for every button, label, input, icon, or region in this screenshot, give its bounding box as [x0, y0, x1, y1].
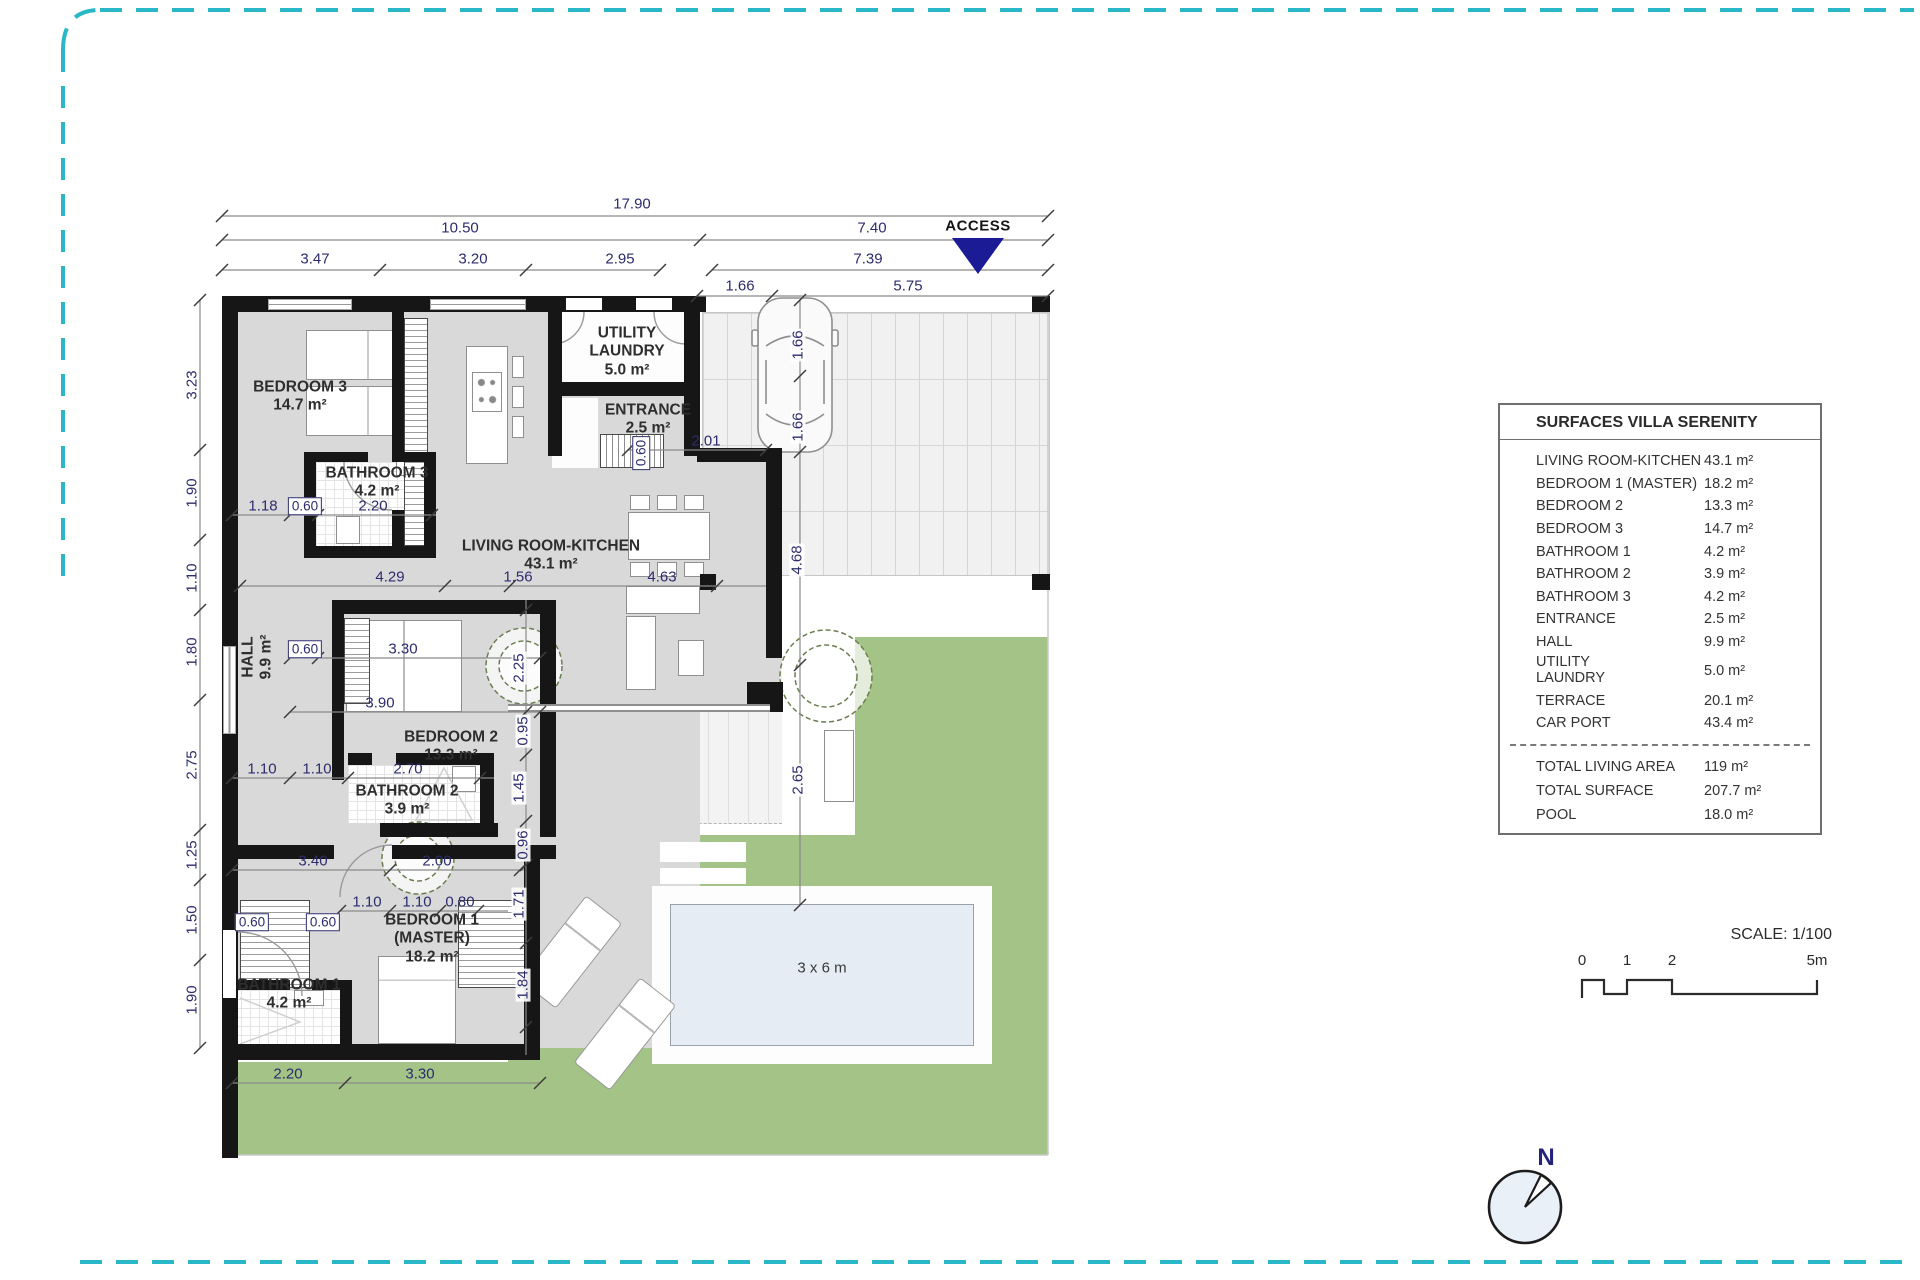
dimension-label: 3.23	[185, 370, 200, 399]
dimension-label: 1.90	[185, 985, 200, 1014]
stepping-stone	[660, 868, 746, 884]
wall-segment	[304, 452, 368, 462]
dimension-label: 1.66	[791, 328, 806, 361]
cooktop	[472, 372, 502, 412]
table-row: BEDROOM 1 (MASTER)18.2 m²	[1500, 473, 1820, 496]
dimension-label: 7.39	[853, 252, 882, 267]
window	[268, 299, 352, 310]
dimension-label: 2.75	[185, 750, 200, 779]
table-divider	[1510, 744, 1810, 746]
sofa	[626, 616, 656, 690]
dimension-label: 3.30	[388, 642, 417, 657]
wall-segment	[392, 312, 404, 462]
room-label-living: LIVING ROOM-KITCHEN 43.1 m²	[462, 538, 640, 575]
surfaces-table-body: LIVING ROOM-KITCHEN43.1 m² BEDROOM 1 (MA…	[1500, 440, 1820, 833]
window	[223, 646, 236, 734]
dimension-label: 1.80	[185, 637, 200, 666]
dimension-label: 2.20	[273, 1067, 302, 1082]
dimension-label: 1.10	[302, 762, 331, 777]
dimension-label: 3.90	[365, 696, 394, 711]
access-label: ACCESS	[945, 218, 1011, 235]
dimension-label: 3.30	[405, 1067, 434, 1082]
dimension-label: 5.75	[893, 279, 922, 294]
table-row-total: TOTAL SURFACE207.7 m²	[1500, 779, 1820, 803]
dimension-label: 0.60	[288, 640, 322, 658]
room-label-bathroom1: BATHROOM 1 4.2 m²	[237, 977, 340, 1014]
room-label-hall: HALL 9.9 m²	[240, 635, 277, 680]
toilet	[336, 516, 360, 544]
bed-double-master	[378, 956, 456, 1044]
carport-column	[700, 574, 716, 590]
dimension-label: 1.10	[185, 563, 200, 592]
dimension-label: 1.10	[402, 895, 431, 910]
bar-stool	[512, 356, 524, 378]
table-row: BATHROOM 23.9 m²	[1500, 563, 1820, 586]
wall-segment	[548, 396, 562, 456]
scale-tick-1: 1	[1623, 952, 1631, 969]
dimension-label: 2.00	[422, 854, 451, 869]
dimension-label: 2.01	[691, 434, 720, 449]
wall-segment	[548, 382, 698, 396]
dimension-label: 4.63	[647, 570, 676, 585]
table-row: ENTRANCE2.5 m²	[1500, 608, 1820, 631]
dimension-label: 1.90	[185, 478, 200, 507]
table-row: HALL9.9 m²	[1500, 631, 1820, 654]
garden-bench	[824, 730, 854, 802]
dimension-label: 3.40	[298, 854, 327, 869]
dimension-label: 2.95	[605, 252, 634, 267]
dimension-label: 0.80	[445, 895, 474, 910]
room-label-bathroom2: BATHROOM 2 3.9 m²	[355, 783, 458, 820]
dimension-label: 1.10	[352, 895, 381, 910]
dimension-label: 0.60	[288, 497, 322, 515]
dimension-label: 1.18	[248, 499, 277, 514]
table-row: UTILITY LAUNDRY5.0 m²	[1500, 653, 1820, 689]
table-row: BEDROOM 213.3 m²	[1500, 495, 1820, 518]
room-label-bedroom2: BEDROOM 2 13.3 m²	[404, 729, 498, 766]
dimension-label: 0.60	[306, 913, 340, 931]
dimension-label: 3.47	[300, 252, 329, 267]
dimension-label: 4.68	[790, 543, 805, 576]
dimension-label: 0.60	[632, 436, 650, 470]
sliding-glass-wall	[508, 704, 770, 712]
carport-column	[1032, 574, 1050, 590]
table-row: LIVING ROOM-KITCHEN43.1 m²	[1500, 450, 1820, 473]
room-label-utility: UTILITY LAUNDRY 5.0 m²	[589, 325, 664, 380]
table-row-total: POOL18.0 m²	[1500, 803, 1820, 827]
door-opening	[566, 298, 602, 310]
room-label-bathroom3: BATHROOM 3 4.2 m²	[325, 465, 428, 502]
wall-segment	[304, 546, 436, 558]
dimension-label: 1.10	[247, 762, 276, 777]
north-compass-icon	[1480, 1152, 1590, 1262]
dimension-label: 1.71	[512, 887, 527, 920]
surfaces-table: SURFACES VILLA SERENITY LIVING ROOM-KITC…	[1498, 403, 1822, 835]
dimension-label: 1.66	[791, 410, 806, 443]
door-opening	[636, 298, 672, 310]
dimension-label: 1.84	[516, 968, 531, 1001]
table-row-total: TOTAL LIVING AREA119 m²	[1500, 755, 1820, 779]
dining-chair	[630, 495, 650, 510]
dimension-label: 1.66	[725, 279, 754, 294]
access-arrow-icon	[948, 236, 1008, 278]
dimension-label: 3.20	[458, 252, 487, 267]
scale-tick-5m: 5m	[1807, 952, 1828, 969]
table-row: TERRACE20.1 m²	[1500, 689, 1820, 712]
dimension-label: 2.25	[512, 651, 527, 684]
wall-segment	[348, 753, 372, 765]
scale-tick-0: 0	[1578, 952, 1586, 969]
table-row: BEDROOM 314.7 m²	[1500, 518, 1820, 541]
dimension-label: 0.96	[516, 828, 531, 861]
dimension-label: 0.60	[235, 913, 269, 931]
scale-ticks: 0 1 2 5m	[1570, 952, 1840, 972]
dimension-label: 0.95	[516, 714, 531, 747]
dimension-label: 2.65	[791, 763, 806, 796]
table-row: BATHROOM 34.2 m²	[1500, 586, 1820, 609]
room-label-entrance: ENTRANCE 2.5 m²	[605, 402, 691, 439]
scale-bar: SCALE: 1/100 0 1 2 5m	[1570, 926, 1840, 1007]
dining-table	[628, 512, 710, 560]
bar-stool	[512, 416, 524, 438]
dimension-label: 1.45	[512, 771, 527, 804]
wall-segment	[524, 845, 540, 1060]
scale-bar-graphic	[1570, 972, 1840, 1002]
sofa	[626, 586, 700, 614]
door-opening	[223, 930, 236, 998]
table-row: BATHROOM 14.2 m²	[1500, 540, 1820, 563]
floorplan-page: ACCESS 17.90 10.50 7.40 3.47 3.20 2.95 7…	[0, 0, 1920, 1280]
pool-size-label: 3 x 6 m	[797, 960, 846, 977]
wall-segment	[340, 988, 352, 1056]
dimension-label: 10.50	[441, 221, 479, 236]
dimension-label: 17.90	[613, 197, 651, 212]
room-label-bedroom1: BEDROOM 1 (MASTER) 18.2 m²	[385, 912, 479, 967]
bar-stool	[512, 386, 524, 408]
wardrobe	[344, 618, 370, 704]
garden-lawn-east	[855, 637, 1048, 837]
dimension-label: 1.25	[185, 840, 200, 869]
wall-segment	[332, 600, 544, 614]
wall-segment	[766, 448, 782, 658]
table-row: CAR PORT43.4 m²	[1500, 712, 1820, 735]
dimension-label: 1.50	[185, 905, 200, 934]
dining-chair	[657, 495, 677, 510]
stepping-stone	[660, 842, 746, 862]
room-label-bedroom3: BEDROOM 3 14.7 m²	[253, 379, 347, 416]
wall-segment	[480, 753, 494, 835]
dining-chair	[684, 495, 704, 510]
wall-segment	[540, 600, 556, 837]
dimension-label: 4.29	[375, 570, 404, 585]
scale-label: SCALE: 1/100	[1570, 926, 1840, 944]
surfaces-table-title: SURFACES VILLA SERENITY	[1500, 405, 1820, 440]
window	[430, 299, 526, 310]
side-table	[678, 640, 704, 676]
wall-segment	[222, 1044, 540, 1060]
bed-single	[306, 330, 394, 380]
carport-column	[1032, 296, 1050, 312]
garden-lawn-south	[222, 1062, 508, 1155]
scale-tick-2: 2	[1668, 952, 1676, 969]
dimension-label: 7.40	[857, 221, 886, 236]
wall-segment	[332, 600, 344, 780]
